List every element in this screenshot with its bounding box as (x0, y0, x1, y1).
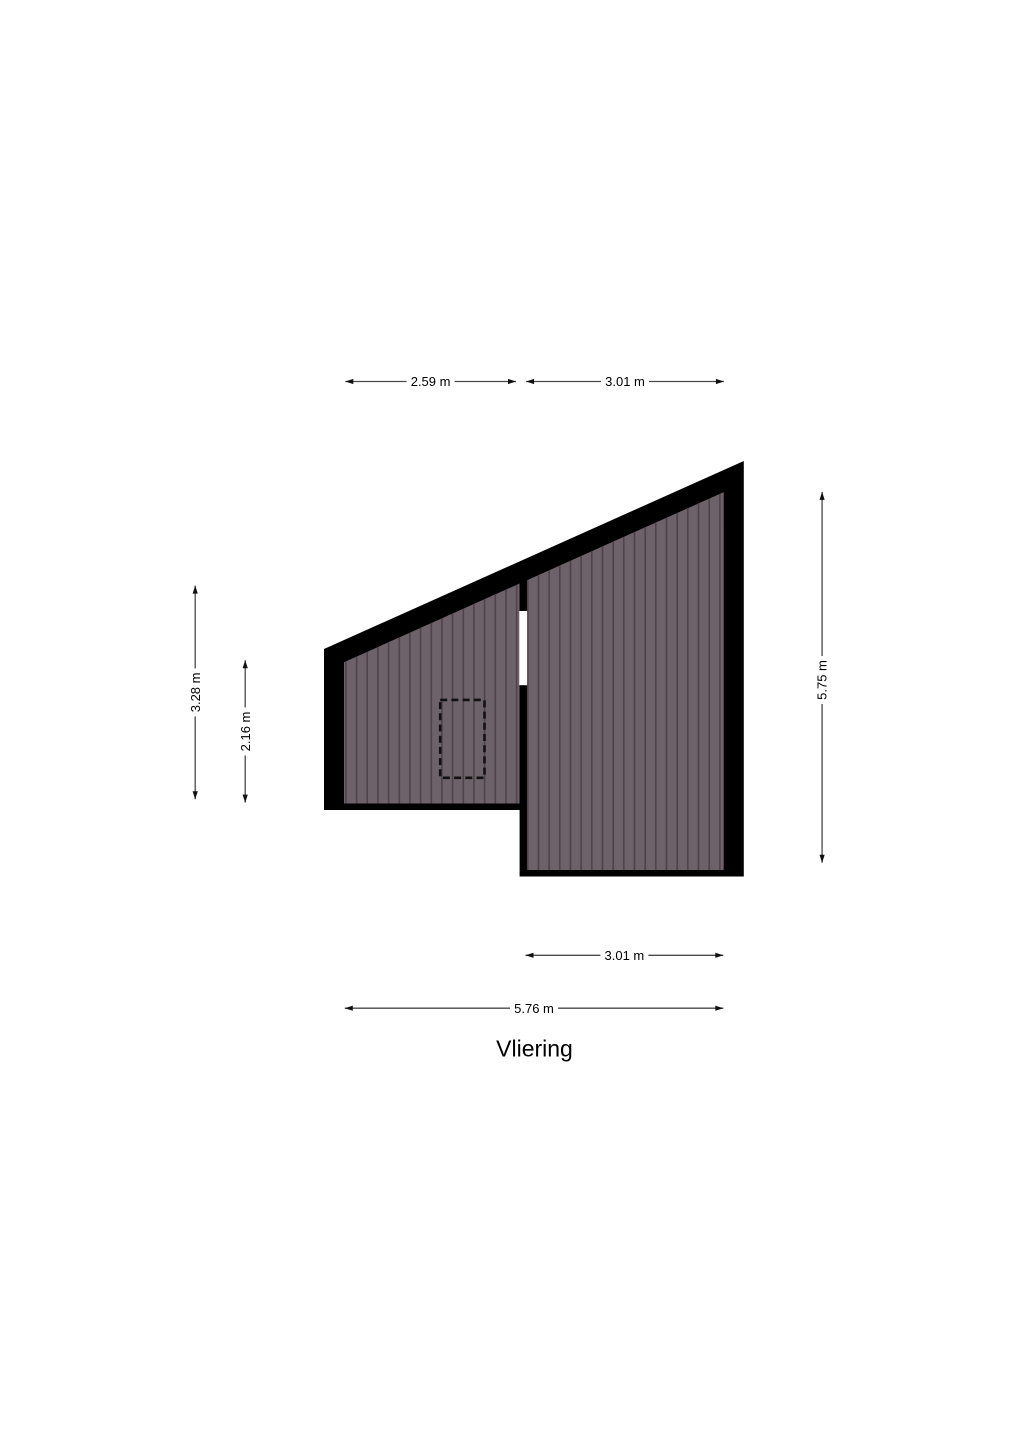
svg-text:2.16 m: 2.16 m (238, 712, 253, 752)
svg-text:Vliering: Vliering (496, 1036, 573, 1062)
svg-text:3.01 m: 3.01 m (605, 374, 645, 389)
svg-text:3.01 m: 3.01 m (605, 948, 645, 963)
svg-text:5.76 m: 5.76 m (514, 1001, 554, 1016)
svg-text:3.28 m: 3.28 m (188, 673, 203, 713)
svg-text:5.75 m: 5.75 m (815, 660, 830, 700)
svg-text:2.59 m: 2.59 m (411, 374, 451, 389)
